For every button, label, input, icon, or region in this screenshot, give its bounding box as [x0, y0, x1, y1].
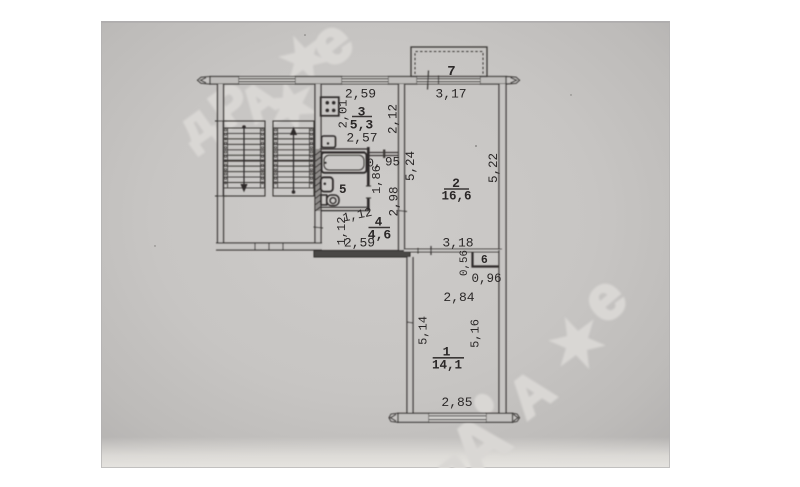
svg-text:7: 7 — [447, 64, 455, 80]
svg-text:2,98: 2,98 — [388, 186, 402, 216]
svg-text:5: 5 — [339, 183, 347, 197]
svg-text:2,85: 2,85 — [441, 395, 472, 410]
svg-text:2,84: 2,84 — [443, 290, 474, 305]
svg-text:5,22: 5,22 — [487, 153, 501, 183]
svg-text:2,59: 2,59 — [345, 87, 376, 102]
svg-text:2,01: 2,01 — [337, 100, 351, 129]
svg-text:0,56: 0,56 — [459, 250, 471, 276]
svg-text:14,1: 14,1 — [432, 359, 462, 373]
svg-text:3,17: 3,17 — [435, 87, 466, 102]
svg-text:0,96: 0,96 — [471, 272, 501, 286]
svg-text:2,57: 2,57 — [346, 131, 377, 146]
svg-text:5,16: 5,16 — [469, 319, 483, 348]
svg-text:1,86: 1,86 — [370, 165, 384, 194]
svg-text:6: 6 — [481, 254, 488, 267]
svg-text:3,18: 3,18 — [442, 236, 473, 251]
svg-text:5,14: 5,14 — [417, 316, 431, 345]
svg-text:2,59: 2,59 — [344, 236, 375, 251]
svg-text:2,12: 2,12 — [387, 104, 401, 134]
svg-text:5,24: 5,24 — [404, 151, 418, 181]
svg-text:16,6: 16,6 — [441, 190, 471, 204]
svg-text:95: 95 — [385, 156, 400, 170]
